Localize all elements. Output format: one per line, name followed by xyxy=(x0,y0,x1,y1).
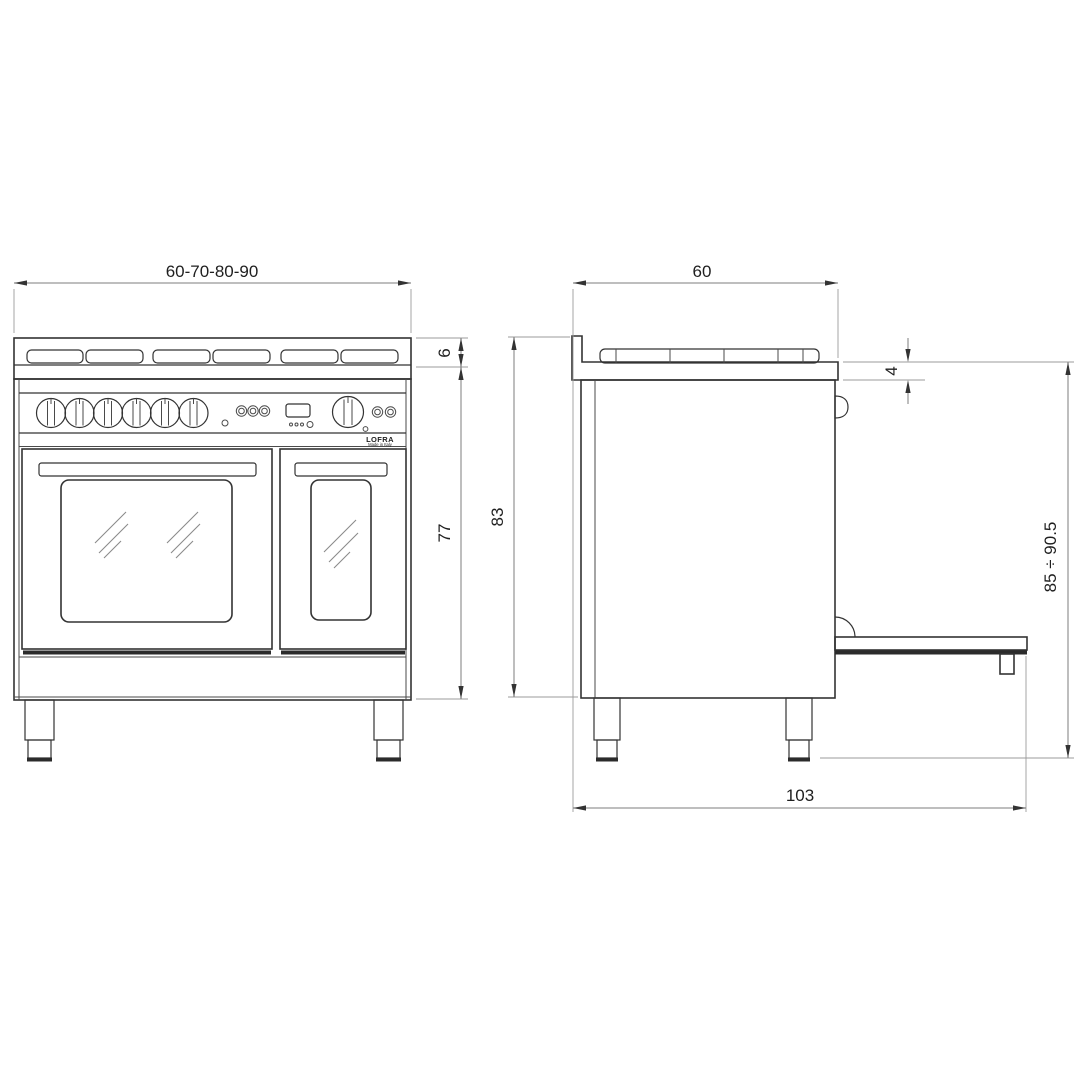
open-door-panel xyxy=(835,637,1027,650)
dimension-depth-label: 60 xyxy=(693,262,712,281)
dimension-depth-door-open-label: 103 xyxy=(786,786,814,805)
burner-knobs xyxy=(37,399,209,428)
dimension-hob-edge-label: 6 xyxy=(435,348,454,357)
dimension-depth: 60 xyxy=(573,262,838,812)
dimension-worktop-thickness-label: 4 xyxy=(882,366,901,375)
console-button xyxy=(372,407,382,417)
feet-side-view xyxy=(594,698,812,760)
oven-door-left-window xyxy=(61,480,232,622)
dimension-height-range-label: 85 ÷ 90.5 xyxy=(1041,522,1060,593)
foot xyxy=(25,700,54,760)
oven-door-left-handle xyxy=(39,463,256,476)
console-button xyxy=(385,407,395,417)
feet-front-view xyxy=(25,700,403,760)
glass-shine-right xyxy=(324,520,358,568)
oven-doors xyxy=(22,449,406,653)
glass-shine-left xyxy=(95,512,200,558)
control-knob xyxy=(65,399,94,428)
burner-grate xyxy=(27,350,83,363)
console-button xyxy=(236,406,246,416)
burner-grate xyxy=(153,350,210,363)
console-button xyxy=(248,406,258,416)
burner-grate xyxy=(341,350,398,363)
dimension-worktop-thickness: 4 xyxy=(843,338,1074,404)
console-button-inner xyxy=(388,409,394,415)
oven-door-left-frame xyxy=(22,449,272,649)
dimension-hob-edge: 6 xyxy=(416,338,468,367)
oven-door-left xyxy=(22,449,272,653)
worktop-backsplash-profile xyxy=(572,336,838,380)
oven-door-right-frame xyxy=(280,449,406,649)
indicator-light xyxy=(222,420,228,426)
door-hinge-arc xyxy=(835,617,855,637)
display-dot xyxy=(290,423,293,426)
control-knob xyxy=(94,399,123,428)
foot xyxy=(374,700,403,760)
control-knob xyxy=(179,399,208,428)
burner-grates-front xyxy=(27,350,398,363)
oven-door-right-handle xyxy=(295,463,387,476)
burner-grate-profile xyxy=(600,349,819,363)
display-dot xyxy=(301,423,304,426)
console-button xyxy=(259,406,269,416)
control-knob xyxy=(37,399,66,428)
burner-grate xyxy=(213,350,270,363)
brand-tagline: Made in Italy xyxy=(368,442,393,447)
burner-grate xyxy=(86,350,143,363)
oven-knob xyxy=(333,397,364,428)
oven-door-right xyxy=(280,449,406,653)
brand-logo: LOFRA Made in Italy xyxy=(366,435,394,447)
display-dot xyxy=(295,423,298,426)
dimension-body-height: 77 xyxy=(416,367,468,699)
dimension-depth-door-open: 103 xyxy=(573,656,1026,812)
range-cooker-dimension-drawing: LOFRA Made in Italy xyxy=(0,0,1080,1080)
console-button-inner xyxy=(250,408,256,414)
dimension-overall-height: 83 xyxy=(488,337,578,697)
foot xyxy=(786,698,812,760)
console-controls xyxy=(222,397,396,432)
dimension-body-height-label: 77 xyxy=(435,524,454,543)
dimension-front-width-label: 60-70-80-90 xyxy=(166,262,259,281)
foot xyxy=(594,698,620,760)
console-button-inner xyxy=(239,408,245,414)
front-view: LOFRA Made in Italy xyxy=(14,338,411,760)
control-knob xyxy=(122,399,151,428)
display-button xyxy=(307,422,313,428)
door-handle-side-profile xyxy=(835,396,848,418)
open-door-handle xyxy=(1000,654,1014,674)
dimension-front-width: 60-70-80-90 xyxy=(14,262,411,333)
indicator-light xyxy=(363,427,368,432)
dimension-height-range: 85 ÷ 90.5 xyxy=(820,362,1074,758)
drawing-canvas: LOFRA Made in Italy xyxy=(0,0,1080,1080)
dimension-overall-height-label: 83 xyxy=(488,508,507,527)
console-button-inner xyxy=(262,408,268,414)
control-knob xyxy=(151,399,180,428)
console-button-inner xyxy=(375,409,381,415)
cooker-body-side xyxy=(581,380,835,698)
timer-display xyxy=(286,404,310,417)
side-view xyxy=(572,336,1027,760)
burner-grate xyxy=(281,350,338,363)
open-oven-door xyxy=(835,617,1027,674)
control-panel: LOFRA Made in Italy xyxy=(19,393,406,447)
